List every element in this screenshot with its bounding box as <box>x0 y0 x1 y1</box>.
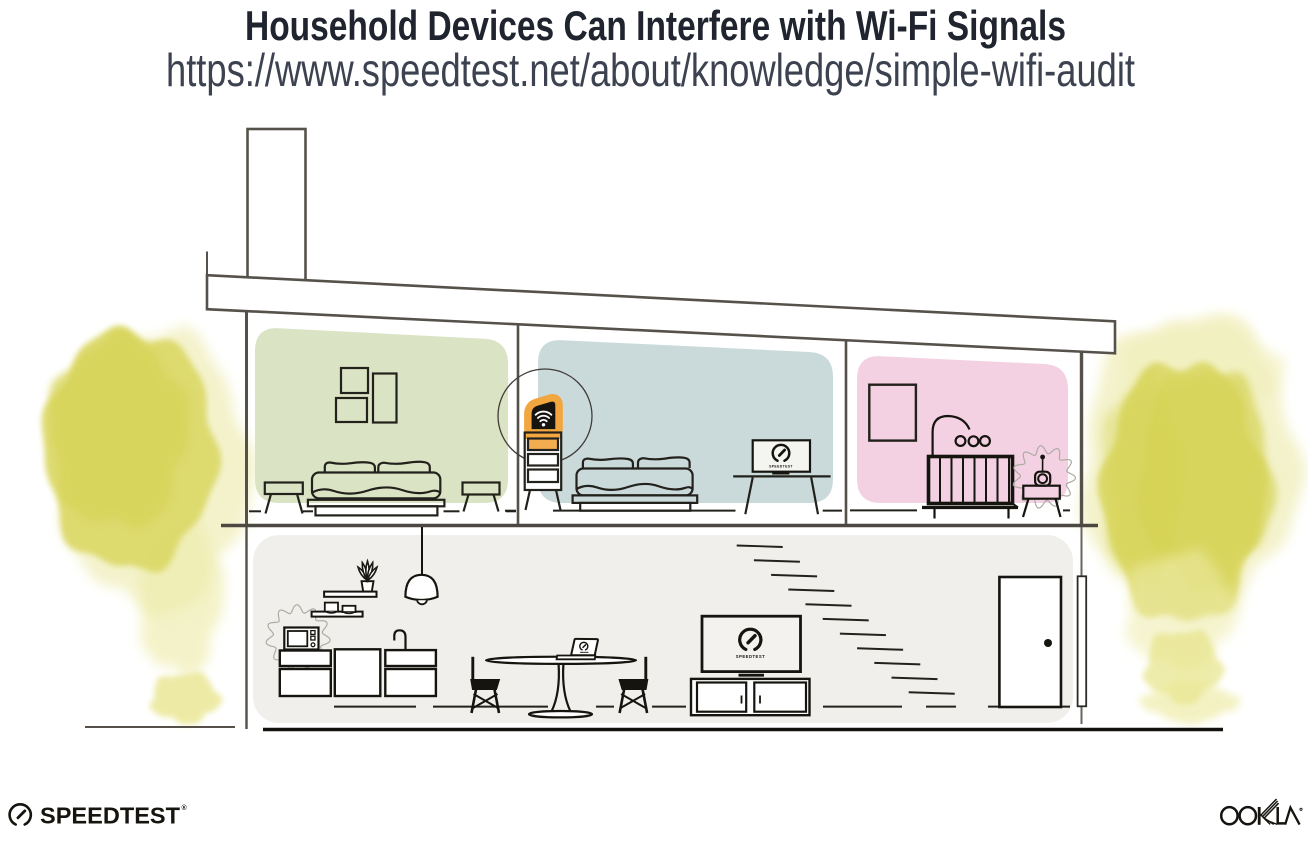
svg-text:SPEEDTEST: SPEEDTEST <box>769 464 793 468</box>
svg-text:SPEEDTEST: SPEEDTEST <box>736 654 765 659</box>
svg-text:Household Devices Can Interfer: Household Devices Can Interfere with Wi-… <box>245 2 1066 49</box>
svg-text:®: ® <box>182 804 188 812</box>
svg-text:https://www.speedtest.net/abou: https://www.speedtest.net/about/knowledg… <box>166 44 1135 96</box>
svg-text:SPEEDTEST: SPEEDTEST <box>40 803 181 829</box>
